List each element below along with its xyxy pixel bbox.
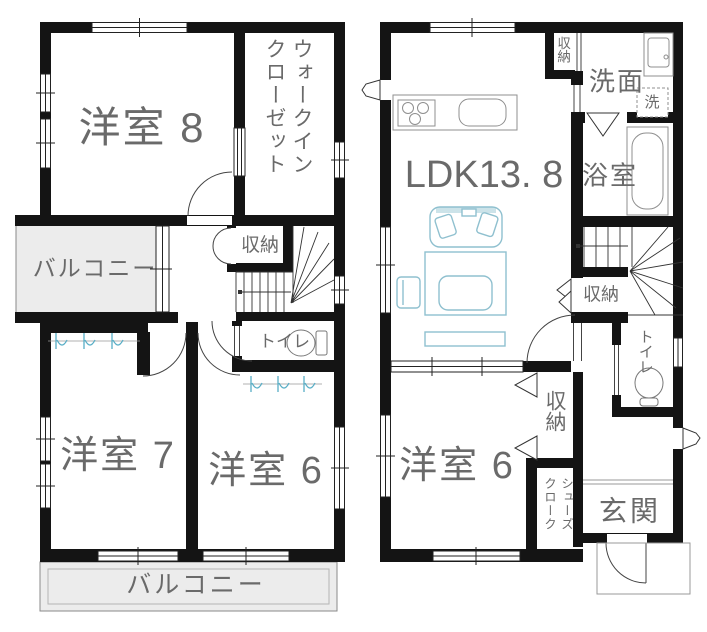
room6-label-1f: 洋室 6 — [399, 447, 515, 487]
washer-label-1f: 洗 — [644, 95, 659, 111]
storage-stairs-label-1f: 収納 — [583, 286, 619, 305]
balcony-bottom-label-2f: バルコニー — [126, 572, 266, 598]
room7-label-2f: 洋室 7 — [60, 437, 176, 477]
room8-label-2f: 洋室 8 — [78, 106, 205, 150]
room6-label-2f: 洋室 6 — [208, 452, 324, 492]
walkin-closet-label-2f: ウォークインクローゼット — [259, 38, 315, 180]
ldk-label-1f: LDK13. 8 — [405, 156, 563, 196]
entrance-label-1f: 玄関 — [599, 496, 661, 525]
storage-label-2f: 収納 — [241, 236, 279, 256]
washroom-label-1f: 洗面 — [589, 68, 645, 95]
ldk-furniture — [397, 207, 506, 346]
toilet-label-2f: トイレ — [259, 333, 310, 351]
bath-label-1f: 浴室 — [582, 162, 638, 189]
toilet-label-1f: トイレ — [637, 329, 653, 383]
kitchen-counter — [393, 95, 517, 130]
floorplan-canvas: 洋室 8 ウォークインクローゼット 収納 バルコニー トイレ 洋室 7 洋室 6… — [0, 0, 707, 632]
storage-top-label-1f: 収納 — [555, 36, 569, 70]
shoes-closet-label-1f: シューズクローク — [538, 477, 574, 535]
closet-label-1f: 収納 — [543, 390, 565, 442]
balcony-side-label-2f: バルコニー — [33, 256, 158, 280]
